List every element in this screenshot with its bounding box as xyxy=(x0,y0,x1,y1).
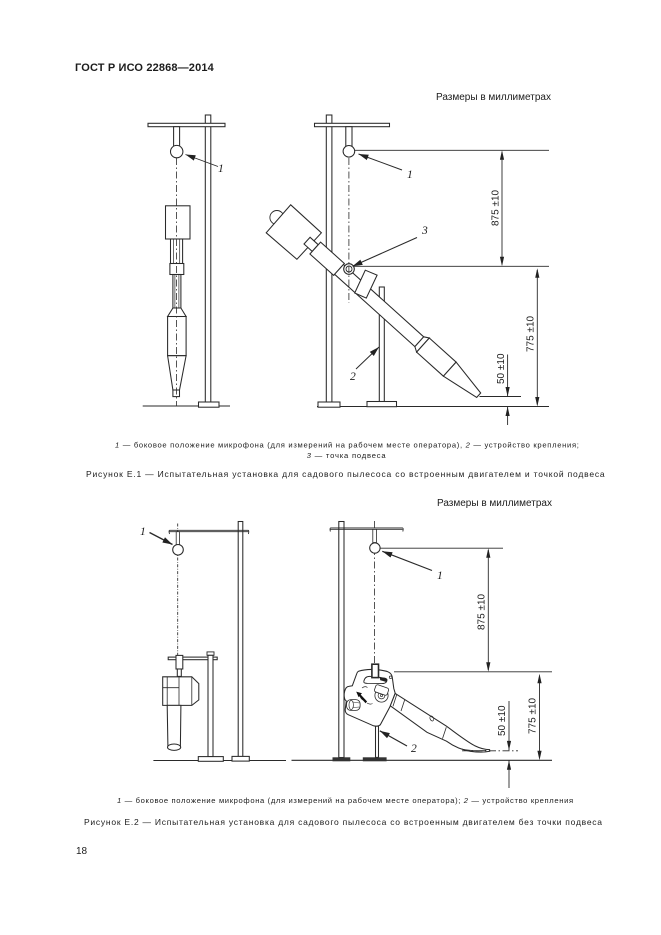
svg-text:3: 3 xyxy=(421,225,428,237)
svg-text:775 ±10: 775 ±10 xyxy=(526,315,537,352)
svg-text:875 ±10: 875 ±10 xyxy=(491,189,502,226)
svg-text:1: 1 xyxy=(218,163,224,175)
svg-text:50 ±10: 50 ±10 xyxy=(496,353,507,384)
svg-text:ГОСТ Р ИСО 22868—2014: ГОСТ Р ИСО 22868—2014 xyxy=(75,62,215,74)
svg-text:1 — боковое положение микрофон: 1 — боковое положение микрофона (для изм… xyxy=(115,441,580,450)
svg-text:50 ±10: 50 ±10 xyxy=(497,705,508,736)
svg-text:3 — точка подвеса: 3 — точка подвеса xyxy=(307,451,387,460)
svg-text:1: 1 xyxy=(140,526,146,538)
svg-text:18: 18 xyxy=(76,846,88,857)
svg-text:2: 2 xyxy=(350,371,356,383)
svg-text:775 ±10: 775 ±10 xyxy=(528,697,539,734)
svg-text:Размеры в миллиметрах: Размеры в миллиметрах xyxy=(436,92,551,103)
svg-text:875 ±10: 875 ±10 xyxy=(477,593,488,630)
svg-text:1: 1 xyxy=(437,570,443,582)
svg-text:2: 2 xyxy=(411,743,417,755)
svg-text:1: 1 xyxy=(407,169,413,181)
svg-text:Рисунок Е.2 — Испытательная ус: Рисунок Е.2 — Испытательная установка дл… xyxy=(84,817,603,827)
svg-text:Рисунок Е.1 — Испытательная ус: Рисунок Е.1 — Испытательная установка дл… xyxy=(86,469,605,479)
svg-text:1 — боковое положение микрофон: 1 — боковое положение микрофона (для изм… xyxy=(117,796,574,805)
svg-text:Размеры в миллиметрах: Размеры в миллиметрах xyxy=(437,498,552,509)
